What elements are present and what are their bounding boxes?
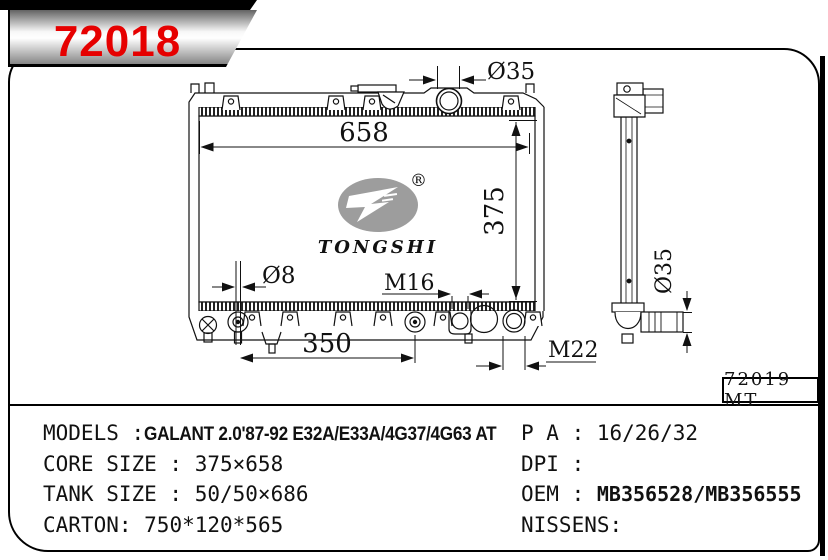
spec-row-models: MODELS :GALANT 2.0'87-92 E32A/E33A/4G37/… (43, 418, 545, 449)
spec-value: 16/26/32 (597, 421, 698, 445)
spec-row-oem: OEM : MB356528/MB356555 (521, 479, 802, 510)
dim-outlet: Ø35 (652, 248, 677, 294)
spec-row-tank-size: TANK SIZE : 50/50×686 (43, 479, 545, 510)
dim-pin: Ø8 (262, 263, 296, 289)
spec-row-pa: P A : 16/26/32 (521, 418, 802, 449)
spec-label: OEM : (521, 482, 597, 506)
spec-label: TANK SIZE : (43, 482, 195, 506)
spec-column-left: MODELS :GALANT 2.0'87-92 E32A/E33A/4G37/… (43, 418, 545, 540)
dim-drain-thread: M22 (548, 338, 599, 363)
dim-core-height: 375 (480, 186, 510, 236)
dim-mount-span: 350 (302, 329, 352, 359)
radiator-technical-drawing: Ø35 658 375 Ø8 350 M16 M22 Ø35 ® TONGSHI (0, 0, 828, 405)
dim-filler-neck: Ø35 (487, 59, 535, 85)
spec-row-carton: CARTON: 750*120*565 (43, 510, 545, 541)
spec-value: 750*120*565 (144, 513, 283, 537)
spec-value: MB356528/MB356555 (597, 482, 802, 506)
spec-value: 50/50×686 (195, 482, 309, 506)
spec-value: GALANT 2.0'87-92 E32A/E33A/4G37/4G63 AT (144, 419, 496, 450)
spec-label: DPI : (521, 452, 584, 476)
spec-row-nissens: NISSENS: (521, 510, 802, 541)
registered-mark: ® (410, 171, 427, 191)
spec-column-right: P A : 16/26/32 DPI : OEM : MB356528/MB35… (521, 418, 802, 540)
catalog-page: 72018 72019 MT (0, 0, 828, 560)
spec-label: CARTON: (43, 513, 144, 537)
dim-inlet-thread: M16 (384, 271, 435, 296)
spec-label: MODELS : (43, 421, 144, 445)
spec-panel: MODELS :GALANT 2.0'87-92 E32A/E33A/4G37/… (0, 406, 828, 548)
spec-label: CORE SIZE : (43, 452, 195, 476)
spec-row-dpi: DPI : (521, 449, 802, 480)
logo-wordmark: TONGSHI (318, 237, 438, 258)
spec-label: P A : (521, 421, 597, 445)
spec-row-core-size: CORE SIZE : 375×658 (43, 449, 545, 480)
dim-core-width: 658 (339, 118, 389, 148)
spec-value: 375×658 (195, 452, 284, 476)
side-view (612, 83, 683, 343)
spec-label: NISSENS: (521, 513, 622, 537)
